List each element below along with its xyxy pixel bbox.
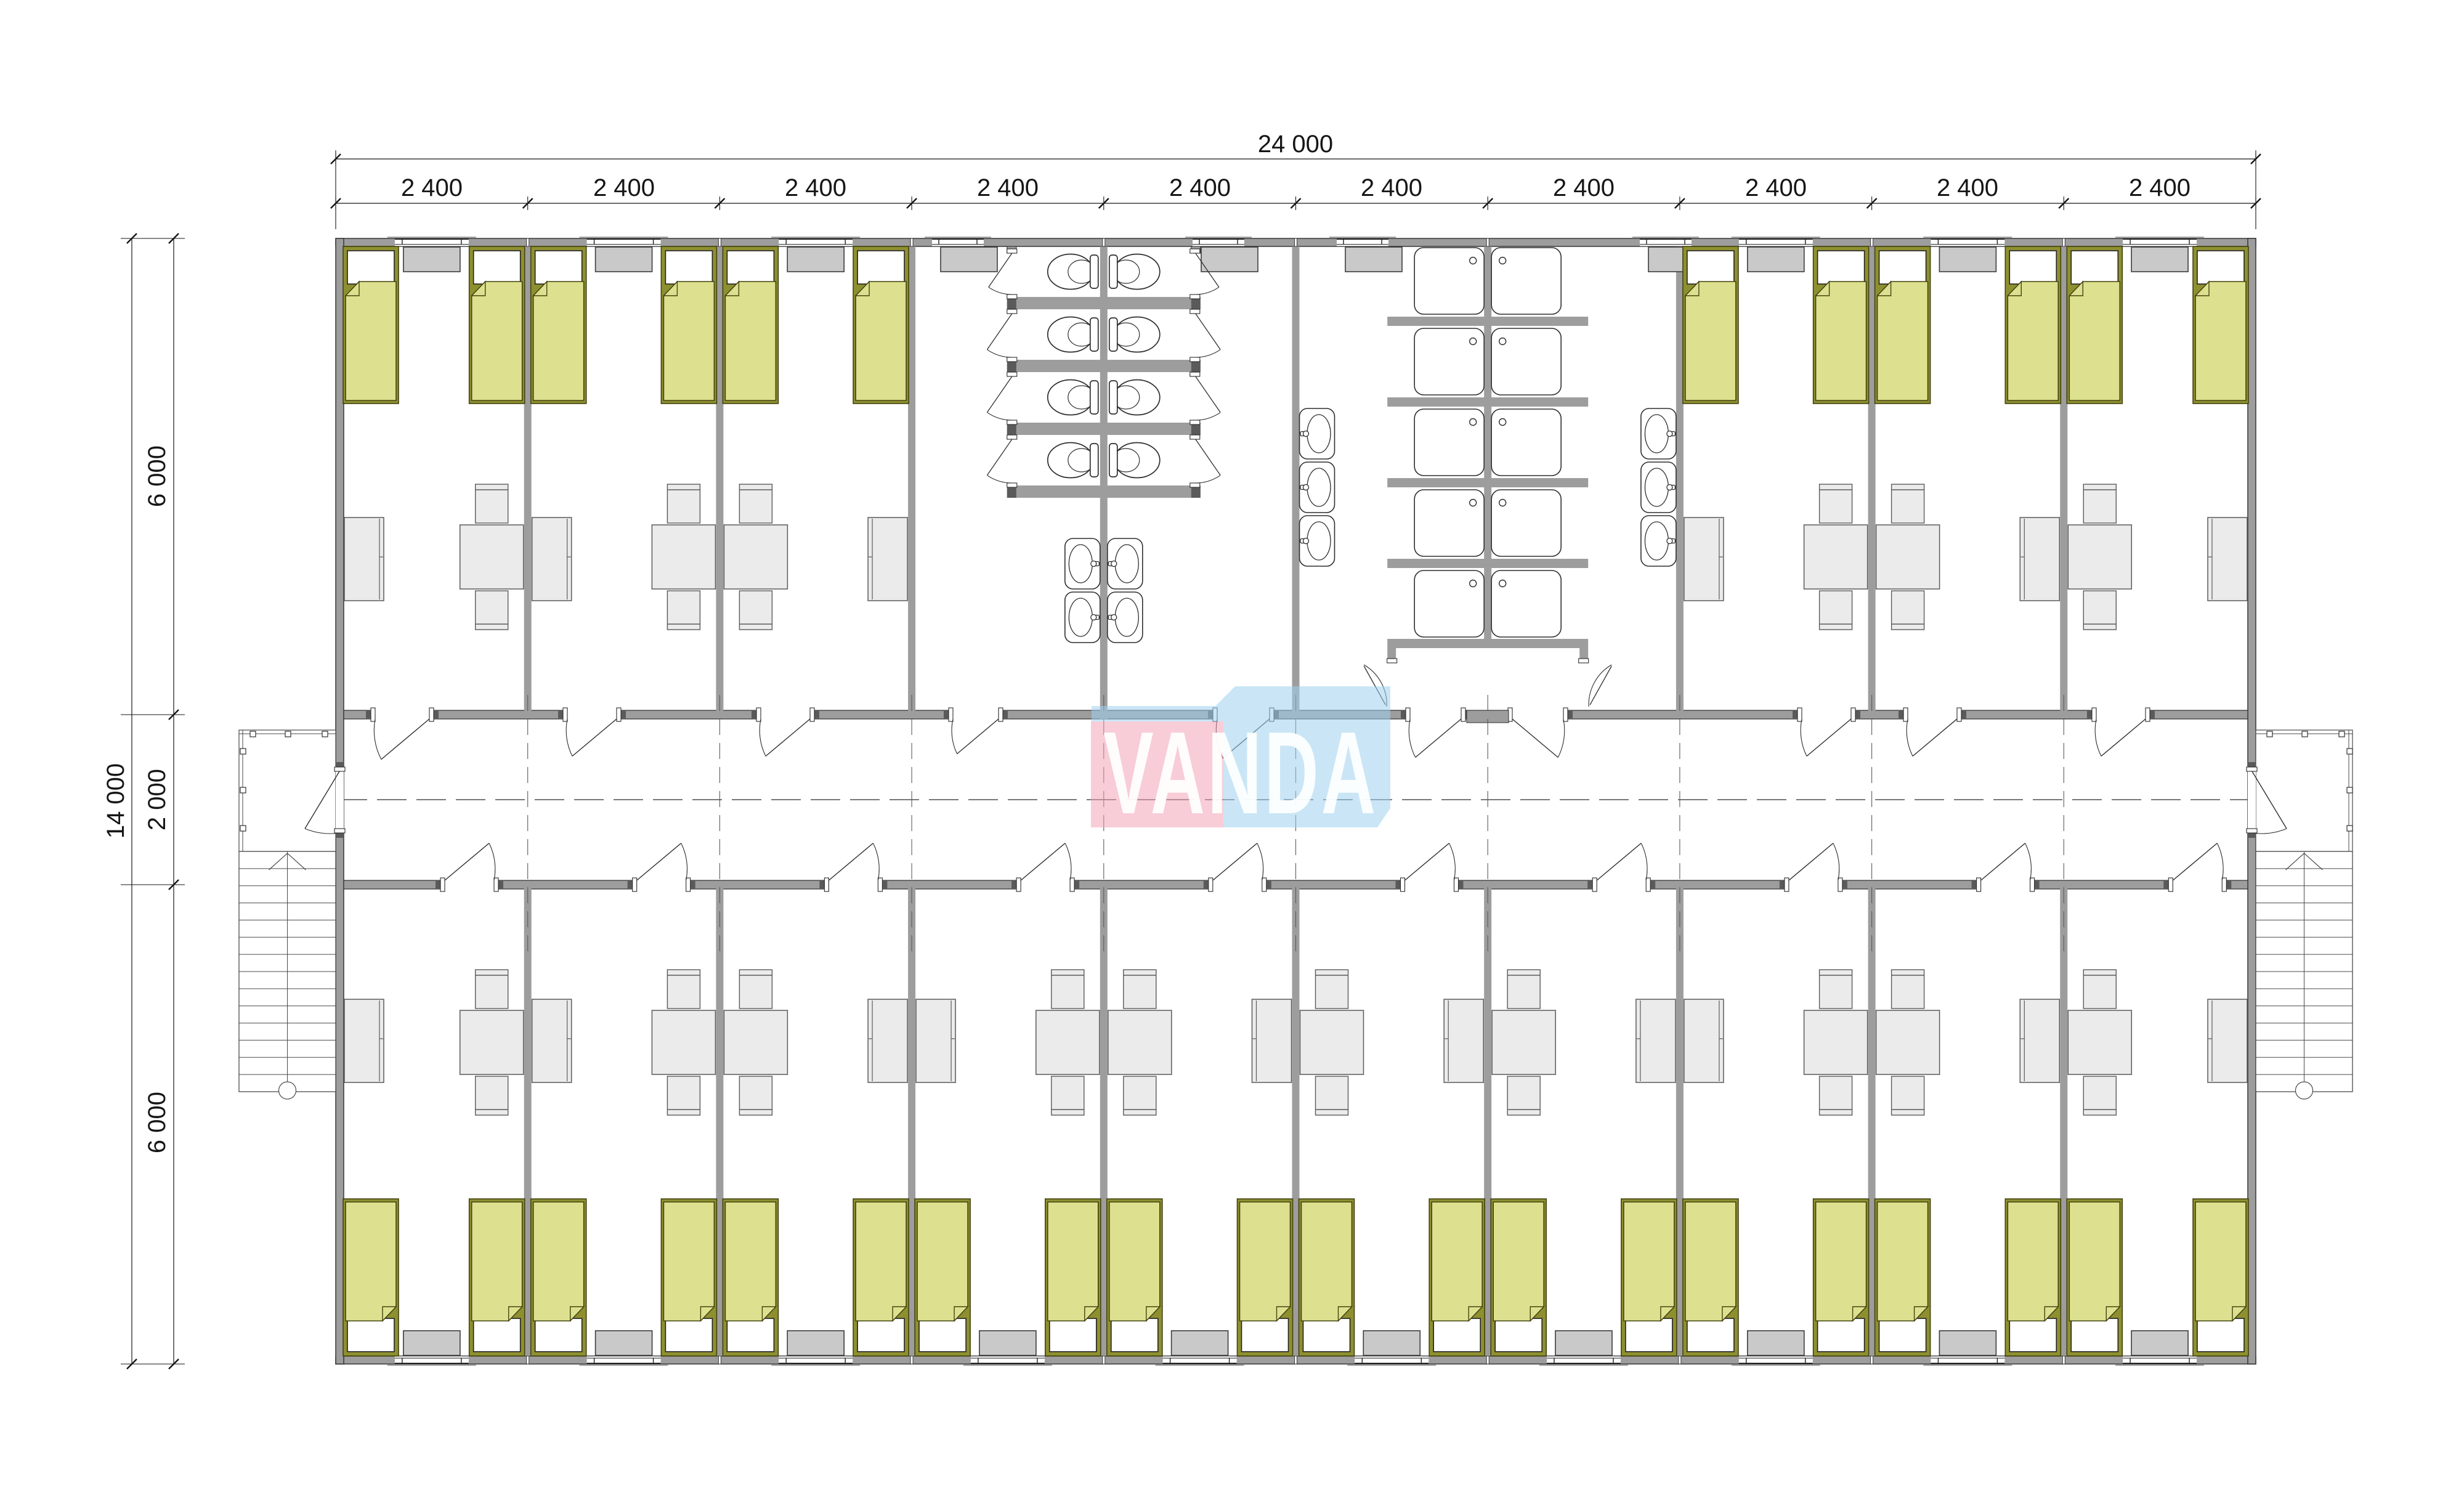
svg-text:2 400: 2 400 <box>593 174 655 201</box>
svg-text:2 400: 2 400 <box>1553 174 1615 201</box>
svg-text:2 000: 2 000 <box>144 769 171 830</box>
svg-text:2 400: 2 400 <box>1745 174 1807 201</box>
svg-text:6 000: 6 000 <box>144 1092 171 1153</box>
svg-text:VANDA: VANDA <box>1103 707 1378 838</box>
svg-text:14 000: 14 000 <box>102 763 129 838</box>
svg-text:2 400: 2 400 <box>2129 174 2190 201</box>
svg-text:2 400: 2 400 <box>1361 174 1422 201</box>
svg-text:2 400: 2 400 <box>1937 174 1998 201</box>
svg-text:2 400: 2 400 <box>1169 174 1231 201</box>
svg-text:2 400: 2 400 <box>977 174 1039 201</box>
svg-text:2 400: 2 400 <box>785 174 846 201</box>
svg-text:6 000: 6 000 <box>144 445 171 507</box>
svg-text:2 400: 2 400 <box>401 174 463 201</box>
svg-text:24 000: 24 000 <box>1258 131 1333 158</box>
